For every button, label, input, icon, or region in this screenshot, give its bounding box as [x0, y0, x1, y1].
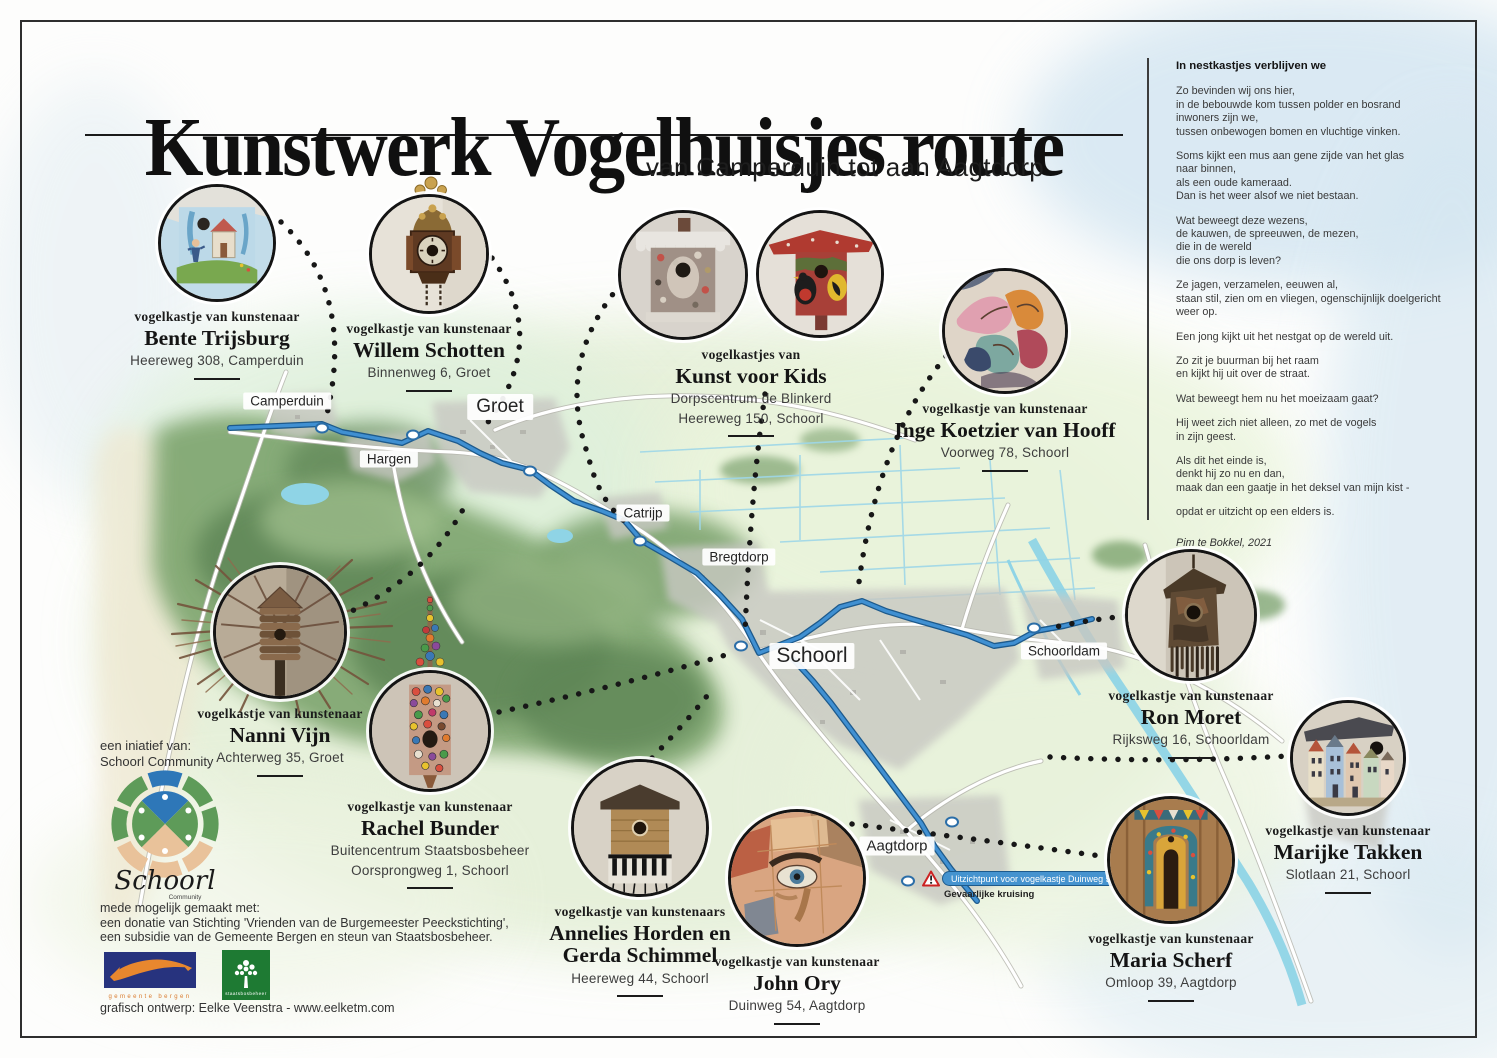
entry-address: Binnenweg 6, Groet — [368, 365, 491, 381]
entry-underline — [728, 435, 774, 437]
entry-marijke-takken: vogelkastje van kunstenaar Marijke Takke… — [1230, 700, 1466, 894]
entry-label: vogelkastje van kunstenaar — [1088, 932, 1253, 947]
entry-underline — [774, 1023, 820, 1025]
poem-stanza: Zo bevinden wij ons hier, in de bebouwde… — [1176, 85, 1468, 139]
poem-stanza: opdat er uitzicht op een elders is. — [1176, 506, 1468, 519]
birdhouse-photo-inge — [942, 268, 1068, 394]
entry-underline — [1148, 1000, 1194, 1002]
entry-artist-name: Kunst voor Kids — [675, 365, 826, 388]
birdhouse-art-lace-collage — [621, 213, 745, 337]
entry-john-ory: vogelkastje van kunstenaar John Ory Duin… — [677, 809, 917, 1025]
gemeente-bergen-logo-text: gemeente bergen — [108, 994, 191, 1000]
birdhouse-art-rusted-metal — [1128, 552, 1254, 678]
poem-stanza: Als dit het einde is, denkt hij zo nu en… — [1176, 455, 1468, 495]
birdhouse-art-clock — [372, 197, 486, 311]
entry-artist-name: Bente Trijsburg — [144, 327, 290, 350]
poem: In nestkastjes verblijven we Zo bevinden… — [1176, 60, 1468, 561]
birdhouse-art-painted-village — [1293, 703, 1403, 813]
entry-underline — [407, 887, 453, 889]
entry-label: vogelkastjes van — [702, 348, 801, 363]
entry-address: Slotlaan 21, Schoorl — [1286, 867, 1411, 883]
birdhouse-photo-ron — [1125, 549, 1257, 681]
poem-stanza: Ze jagen, verzamelen, eeuwen al, staan s… — [1176, 279, 1468, 319]
warning-triangle-icon — [922, 870, 940, 887]
entry-artist-name: Inge Koetzier van Hooff — [894, 419, 1115, 442]
design-credit: grafisch ontwerp: Eelke Veenstra - www.e… — [100, 1001, 395, 1015]
entry-bente-trijsburg: vogelkastje van kunstenaar Bente Trijsbu… — [87, 184, 347, 380]
entry-underline — [617, 995, 663, 997]
poem-stanza: Een jong kijkt uit het nestgat op de wer… — [1176, 331, 1468, 344]
map-label-groet: Groet — [467, 394, 533, 420]
poem-stanza: Soms kijkt een mus aan gene zijde van he… — [1176, 150, 1468, 204]
entry-artist-name: Rachel Bunder — [361, 817, 499, 840]
entry-label: vogelkastje van kunstenaar — [714, 955, 879, 970]
birdhouse-photo-john — [728, 809, 866, 947]
birdhouse-photo-rachel — [369, 670, 491, 792]
map-label-bregtdorp: Bregtdorp — [702, 549, 775, 566]
schoorl-community-logo: Schoorl Community — [103, 769, 227, 903]
entry-address: Voorweg 78, Schoorl — [941, 445, 1069, 461]
staatsbosbeheer-logo-text: staatsbosbeheer — [225, 991, 266, 996]
entry-address: Oorsprongweg 1, Schoorl — [351, 863, 509, 879]
entry-address: Heereweg 150, Schoorl — [678, 411, 823, 427]
entry-willem-schotten: vogelkastje van kunstenaar Willem Schott… — [309, 194, 549, 392]
entry-underline — [194, 378, 240, 380]
entry-address: Dorpscentrum de Blinkerd — [671, 391, 832, 407]
entry-address: Buitencentrum Staatsbosbeheer — [331, 843, 530, 859]
entry-artist-name: Maria Scherf — [1110, 949, 1232, 972]
community-logo-subtitle: Community — [169, 894, 203, 901]
poem-author: Pim te Bokkel, 2021 — [1176, 537, 1468, 550]
map-label-schoorl: Schoorl — [769, 643, 854, 669]
poem-title: In nestkastjes verblijven we — [1176, 60, 1468, 73]
poem-stanza: Wat beweegt deze wezens, de kauwen, de s… — [1176, 215, 1468, 269]
poster: Kunstwerk Vogelhuisjes route van Camperd… — [0, 0, 1497, 1058]
birdhouse-photo-maria — [1107, 796, 1235, 924]
community-logo-title: Schoorl — [114, 866, 215, 896]
gemeente-bergen-logo: gemeente bergen — [104, 952, 199, 1002]
entry-kunst-voor-kids: vogelkastjes van Kunst voor Kids Dorpsce… — [611, 210, 891, 437]
entry-label: vogelkastje van kunstenaar — [922, 402, 1087, 417]
entry-inge-koetzier-van-hooff: vogelkastje van kunstenaar Inge Koetzier… — [863, 268, 1147, 472]
map-label-camperduin: Camperduin — [243, 393, 331, 410]
support-credits: mede mogelijk gemaakt met: een donatie v… — [100, 901, 509, 945]
entry-address: Omloop 39, Aagtdorp — [1105, 975, 1236, 991]
map-label-hargen: Hargen — [360, 451, 418, 468]
support-line: een donatie van Stichting 'Vrienden van … — [100, 916, 509, 931]
entry-label: vogelkastje van kunstenaar — [346, 322, 511, 337]
entry-label: vogelkastje van kunstenaar — [1265, 824, 1430, 839]
poem-stanza: Hij weet zich niet alleen, zo met de vog… — [1176, 417, 1468, 444]
entry-underline — [406, 390, 452, 392]
entry-artist-name: Marijke Takken — [1274, 841, 1423, 864]
poem-divider-line — [1147, 58, 1149, 520]
page-subtitle: van Camperduin tot aan Aagtdorp — [610, 152, 1080, 183]
entry-label: vogelkastje van kunstenaar — [347, 800, 512, 815]
warning-label: Gevaarlijke kruising — [944, 889, 1034, 900]
entry-artist-name: Willem Schotten — [353, 339, 505, 362]
entry-underline — [1168, 757, 1214, 759]
entry-address: Heereweg 308, Camperduin — [130, 353, 304, 369]
birdhouse-photo-marijke — [1290, 700, 1406, 816]
entry-label: vogelkastje van kunstenaar — [134, 310, 299, 325]
birdhouse-art-painted-house — [161, 187, 273, 299]
entry-address: Duinweg 54, Aagtdorp — [729, 998, 866, 1014]
entry-underline — [1325, 892, 1371, 894]
poem-stanza: Wat beweegt hem nu het moeizaam gaat? — [1176, 393, 1468, 406]
birdhouse-art-button-house — [372, 673, 488, 789]
support-line: een subsidie van de Gemeente Bergen en s… — [100, 930, 509, 945]
birdhouse-art-floral-collage — [945, 271, 1065, 391]
birdhouse-art-arch-door — [1110, 799, 1232, 921]
support-intro: mede mogelijk gemaakt met: — [100, 901, 509, 916]
staatsbosbeheer-logo: staatsbosbeheer — [222, 950, 270, 1000]
birdhouse-pair — [618, 210, 884, 340]
entry-artist-name: Ron Moret — [1141, 706, 1242, 729]
map-label-catrijp: Catrijp — [616, 505, 669, 522]
entry-underline — [982, 470, 1028, 472]
birdhouse-photo-willem — [369, 194, 489, 314]
entry-artist-name: John Ory — [753, 972, 841, 995]
birdhouse-art-mosaic-face — [731, 812, 863, 944]
birdhouse-photo-bente — [158, 184, 276, 302]
birdhouse-photo-kids-1 — [618, 210, 748, 340]
poem-stanza: Zo zit je buurman bij het raam en kijkt … — [1176, 355, 1468, 382]
